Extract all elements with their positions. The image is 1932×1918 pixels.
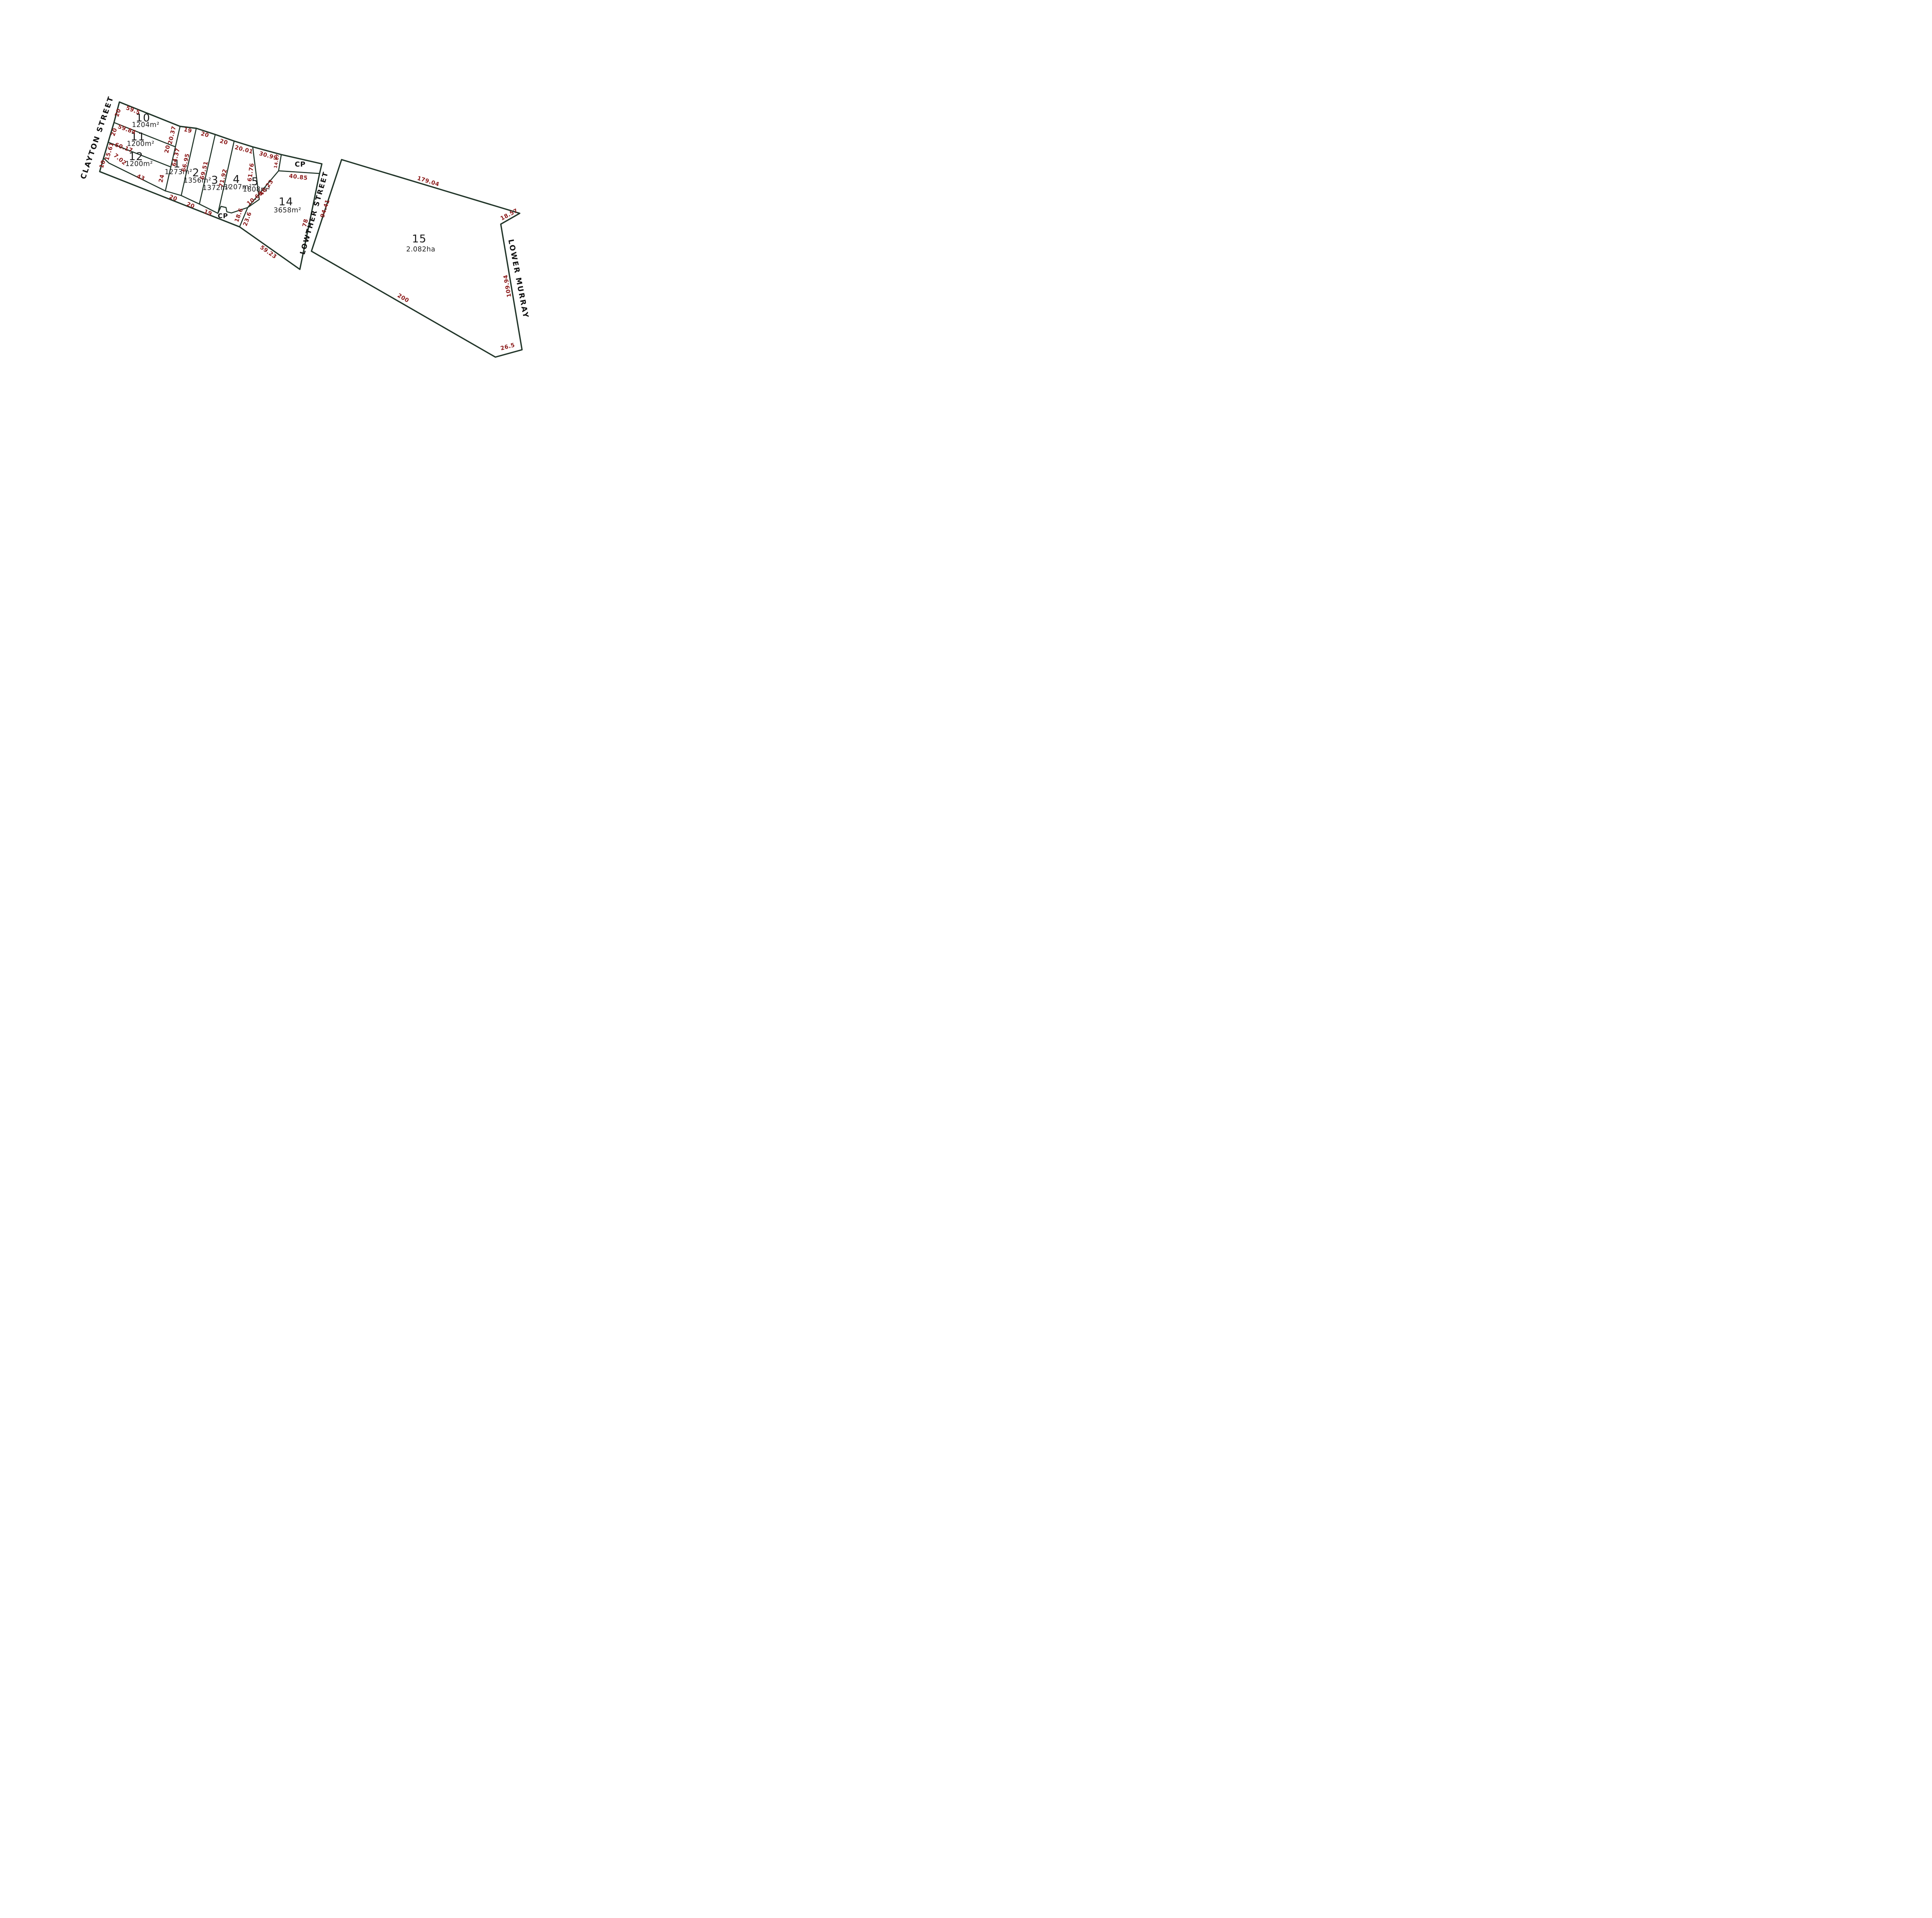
survey-plan-canvas: CLAYTON STREET LOWTHER STREET LOWER MURR… <box>0 0 597 422</box>
boundary-cp-south <box>279 171 320 174</box>
lot-10-area: 1204m² <box>132 122 160 129</box>
lot-14-number: 14 <box>279 196 293 207</box>
lot-15-number: 15 <box>412 233 427 244</box>
cp-right-label: CP <box>295 161 306 168</box>
cp-road-label: CP <box>218 213 228 220</box>
boundary-lot15 <box>311 160 522 357</box>
lot-11-area: 1200m² <box>127 141 155 148</box>
lot-14-area: 3658m² <box>274 207 301 214</box>
lot-1-area: 1273m² <box>165 169 192 176</box>
lot-2-area: 1356m² <box>184 177 211 184</box>
lot-12-area: 1200m² <box>125 161 153 168</box>
lot-15-area: 2.082ha <box>406 246 435 253</box>
